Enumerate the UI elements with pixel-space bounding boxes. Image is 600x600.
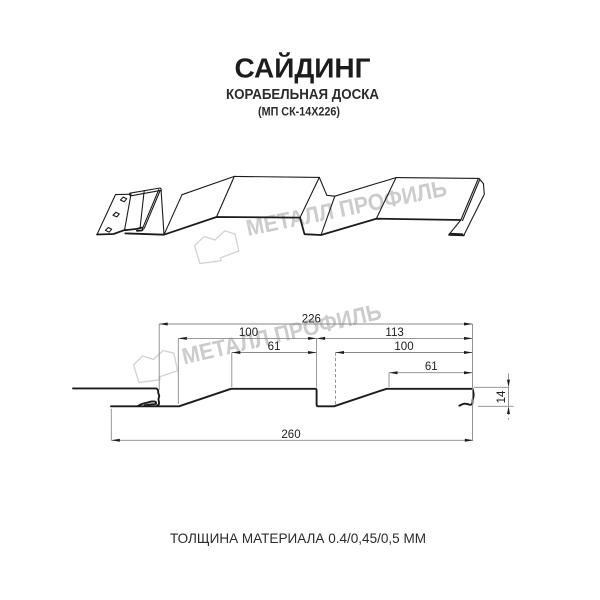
svg-text:226: 226 [302,313,321,325]
svg-text:113: 113 [385,327,403,339]
svg-text:САЙДИНГ: САЙДИНГ [234,51,370,83]
svg-text:100: 100 [239,327,258,339]
svg-text:ТОЛЩИНА МАТЕРИАЛА 0.4/0,45/0,5: ТОЛЩИНА МАТЕРИАЛА 0.4/0,45/0,5 ММ [170,530,426,546]
svg-text:МЕТАЛЛ ПРОФИЛЬ: МЕТАЛЛ ПРОФИЛЬ [179,298,384,369]
svg-text:МЕТАЛЛ ПРОФИЛЬ: МЕТАЛЛ ПРОФИЛЬ [244,175,449,241]
svg-text:14: 14 [496,390,508,403]
svg-text:(МП СК-14Х226): (МП СК-14Х226) [258,104,340,118]
svg-text:КОРАБЕЛЬНАЯ ДОСКА: КОРАБЕЛЬНАЯ ДОСКА [226,87,379,103]
svg-text:61: 61 [268,341,281,353]
svg-text:260: 260 [281,429,300,441]
svg-text:100: 100 [394,341,413,353]
svg-text:61: 61 [425,361,438,373]
